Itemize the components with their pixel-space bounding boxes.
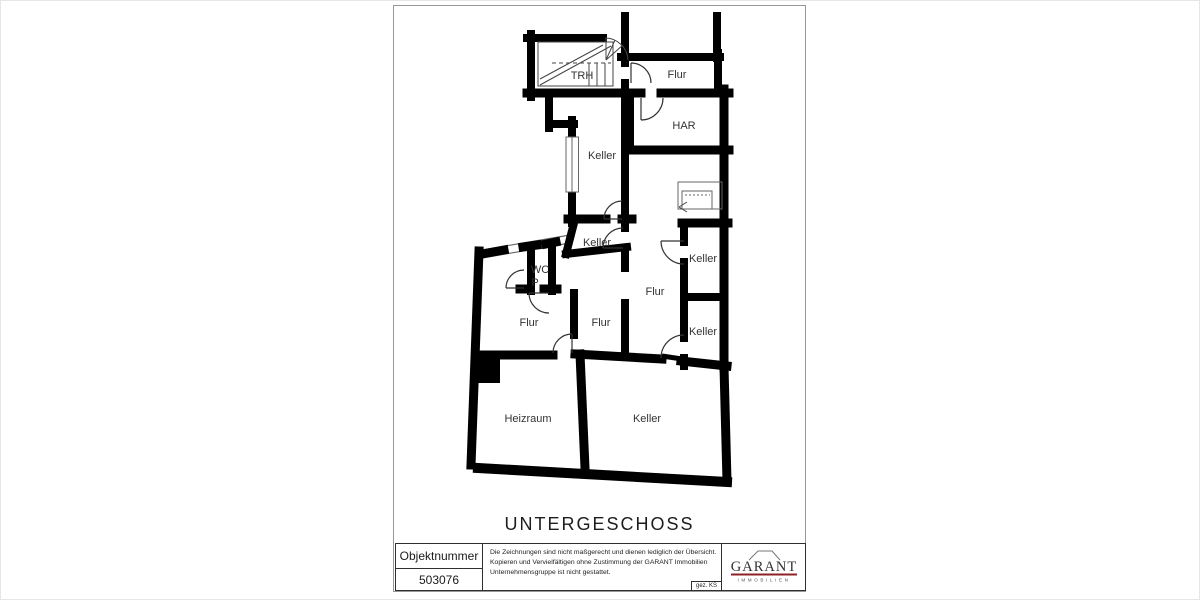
- room-label-keller-right-upper: Keller: [689, 253, 717, 265]
- chimney-block: [476, 352, 500, 383]
- room-label-har: HAR: [672, 120, 695, 132]
- room-label-flur-middle: Flur: [592, 317, 611, 329]
- room-label-flur-top: Flur: [668, 69, 687, 81]
- logo-cell: GARANT IMMOBILIEN: [722, 544, 805, 590]
- disclaimer-line-1: Die Zeichnungen sind nicht maßgerecht un…: [490, 548, 695, 558]
- room-label-wc-p: P: [531, 277, 538, 289]
- room-label-keller-small: Keller: [583, 237, 611, 249]
- disclaimer-cell: Die Zeichnungen sind nicht maßgerecht un…: [483, 544, 722, 590]
- cellar-shaft: [678, 182, 722, 212]
- room-label-heizraum: Heizraum: [504, 413, 551, 425]
- room-label-keller-bottom: Keller: [633, 413, 661, 425]
- disclaimer-line-2: Kopieren und Vervielfältigen ohne Zustim…: [490, 558, 695, 568]
- plan-sheet: TRH Flur HAR Keller Keller WC P Flur Flu…: [393, 5, 806, 592]
- screenshot-canvas: TRH Flur HAR Keller Keller WC P Flur Flu…: [0, 0, 1200, 600]
- object-number-value: 503076: [396, 569, 482, 590]
- doors: [506, 63, 684, 358]
- room-label-keller-upper: Keller: [588, 150, 616, 162]
- room-label-trh: TRH: [571, 70, 594, 82]
- logo-subtitle: IMMOBILIEN: [737, 578, 790, 583]
- title-block: Objektnummer 503076 Die Zeichnungen sind…: [395, 543, 806, 591]
- object-number-cell: Objektnummer 503076: [396, 544, 483, 590]
- room-label-wc: WC: [531, 264, 549, 276]
- disclaimer-line-3: Unternehmensgruppe ist nicht gestattet.: [490, 568, 695, 578]
- drawn-by-badge: gez. KS: [691, 581, 721, 590]
- window-upper-keller: [566, 137, 579, 192]
- door-leaf-bar: [662, 356, 682, 359]
- logo-wordmark: GARANT: [730, 559, 796, 575]
- room-label-flur-left: Flur: [520, 317, 539, 329]
- room-label-keller-right-lower: Keller: [689, 326, 717, 338]
- floor-title: UNTERGESCHOSS: [394, 514, 805, 535]
- floor-plan: TRH Flur HAR Keller Keller WC P Flur Flu…: [394, 6, 805, 539]
- object-number-label: Objektnummer: [396, 544, 482, 569]
- room-label-flur-main: Flur: [646, 286, 665, 298]
- garant-logo: GARANT IMMOBILIEN: [728, 549, 800, 585]
